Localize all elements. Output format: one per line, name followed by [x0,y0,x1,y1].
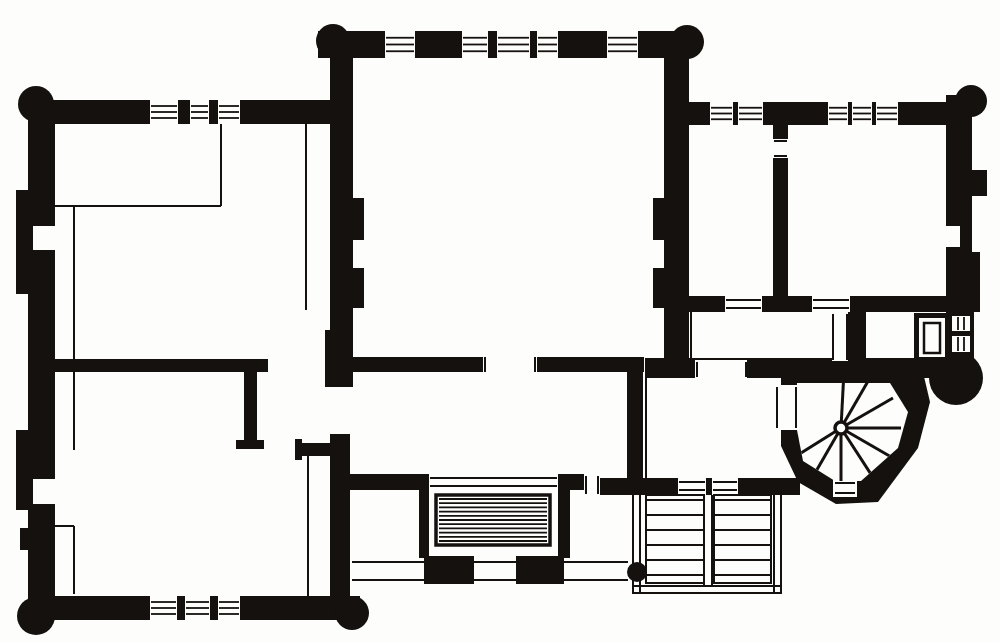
door-opening [33,477,55,506]
door-opening [712,478,738,495]
wall-segment [330,434,350,600]
wall-segment [30,100,333,124]
wall-segment [570,474,584,490]
wall-segment [558,474,570,558]
wall-segment [773,158,788,300]
floor-plan-page [0,0,1000,642]
door-opening [483,357,537,372]
wall-segment [300,443,332,456]
wall-segment [419,474,429,558]
wall-segment [325,357,484,372]
wall-segment [627,358,643,495]
wall-segment [16,190,30,294]
spiral-newel-post [835,422,847,434]
wall-segment [55,359,268,372]
window-opening [952,336,970,352]
wall-segment [20,528,30,550]
wall-segment [600,478,628,495]
door-opening [725,296,762,312]
wall-segment [244,372,257,444]
door-opening [678,478,706,495]
wall-segment [28,118,55,600]
wall-segment [330,58,353,334]
wall-segment [972,170,987,196]
wall-segment [653,268,665,308]
wall-segment [348,474,420,490]
stair-newel-dot [627,562,647,582]
corner-turret [929,351,983,405]
corner-turret [335,596,369,630]
corner-turret [17,597,55,635]
door-opening [429,474,558,490]
door-opening [812,296,850,312]
door-opening [33,224,55,252]
door-opening [833,479,857,497]
wall-segment [773,125,788,139]
door-opening [695,360,747,378]
wall-segment [16,430,32,510]
door-opening [775,385,798,430]
corner-turret [955,85,987,117]
door-opening [832,313,848,361]
wall-segment [352,268,364,308]
wall-segment [664,58,689,360]
corner-turret [18,86,54,122]
wall-segment [424,556,474,584]
wall-segment [295,439,302,460]
corner-turret [670,25,704,59]
wall-segment [352,198,364,240]
window-opening [952,316,970,331]
wall-segment [653,198,665,240]
door-opening [946,224,960,249]
floor-plan-drawing [0,0,1000,642]
wall-segment [848,312,866,362]
wall-segment [236,440,264,449]
wall-segment [516,556,564,584]
corner-turret [316,24,350,58]
